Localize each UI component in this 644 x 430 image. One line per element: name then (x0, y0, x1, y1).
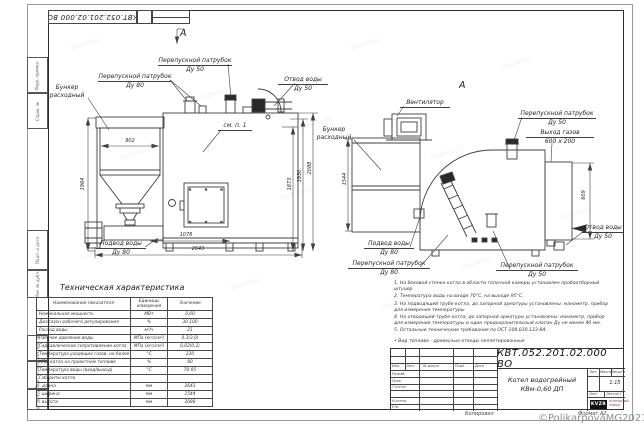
label-fan: Вентилятор (400, 99, 450, 108)
table-row: - длинамм2643 (37, 383, 213, 391)
technical-notes: 1. На боковой стенке котла в области топ… (394, 281, 612, 346)
stamp-col-izm: Изм. (392, 364, 405, 368)
label-bypass-pipe-50-bottom: Перепускной патрубокДу 50 (496, 262, 578, 279)
dimension-1078: 1078 (168, 232, 204, 238)
label-bypass-pipe-80-side: Перепускной патрубокДу 80 (348, 260, 430, 277)
table-row: Номинальная мощностьМВт0,60 (37, 311, 213, 319)
table-row: Диапазон рабочего регулирования%30-100 (37, 319, 213, 327)
stamp-row-nkontr: Н.контр. (392, 399, 419, 403)
title-block: Изм. Лист № докум. Подп. Дата Разраб. Пр… (390, 348, 624, 410)
kvzr-logo-caption: КОТЕЛЬНЫЙЗАВОД (609, 400, 625, 408)
page: { "sheet": { "doc_number": "КВТ.052.201.… (0, 0, 644, 430)
note-1: 1. На боковой стенке котла в области топ… (394, 281, 612, 293)
dimension-609: 609 (581, 180, 587, 210)
table-row: КПД котла на проектном топливе%80 (37, 359, 213, 367)
stamp-row-razrab: Разраб. (392, 372, 419, 376)
dimension-902: 902 (112, 138, 148, 144)
table-row: - ширинамм1544 (37, 391, 213, 399)
scale-value: 1:15 (605, 380, 625, 386)
stamp-lit: Лит. (588, 370, 599, 374)
view-title-letter: А (459, 80, 466, 91)
stamp-col-data: Дата (475, 364, 495, 368)
label-bunker: Бункеррасходный (44, 84, 90, 100)
stamp-row-prov: Пров. (392, 379, 419, 383)
label-bunker-side: Бункеррасходный (312, 126, 356, 142)
stamp-scale: Масштаб (611, 370, 625, 374)
label-bypass-pipe-50: Перепускной патрубокДу 50 (158, 57, 232, 74)
product-name: Котел водогрейный КВм-0,60 ДП (497, 369, 587, 411)
copyright-watermark: ©PolikarpovaMG2021 (538, 413, 644, 424)
spec-table-title: Техническая характеристика (60, 283, 184, 292)
dimension-2088: 2088 (307, 153, 313, 183)
table-row: Габариты котла (37, 375, 213, 383)
stamp-row-tkontr: Т.контр. (392, 385, 419, 389)
label-water-outlet: Отвод водыДу 50 (278, 76, 328, 93)
stamp-col-podp: Подп. (455, 364, 473, 368)
spec-header-unit: Единицы измерения (131, 298, 168, 311)
stamp-col-doc: № докум. (423, 364, 453, 368)
label-bypass-pipe-50-top: Перепускной патрубокДу 50 (518, 110, 596, 127)
dimension-1964: 1964 (80, 169, 86, 199)
doc-number: КВТ.052.201.02.000 ВО (497, 349, 625, 369)
note-5: 5. Остальные технические требования по О… (394, 328, 612, 334)
label-water-outlet-side: Отвод водыДу 50 (582, 224, 624, 241)
label-gas-outlet: Выход газов600 x 200 (526, 129, 594, 146)
label-bypass-pipe-80: Перепускной патрубокДу 80 (98, 73, 172, 90)
table-row: Температура уходящих газов, не более°С23… (37, 351, 213, 359)
stamp-row-utv: Утв. (392, 405, 419, 409)
spec-header-name: Наименование показателя (37, 298, 131, 311)
note-2: 2. Температура воды на входе 70°С, на вы… (394, 294, 612, 300)
note-4: 4. На отводящей трубе котла, до запорной… (394, 315, 612, 327)
table-row: Расход водым³/ч21 (37, 327, 213, 335)
dimension-1544: 1544 (342, 164, 348, 194)
label-water-inlet-side: Подвод водыДу 80 (364, 240, 414, 257)
dimension-2643: 2643 (180, 246, 216, 252)
dimension-1930: 1930 (297, 161, 303, 191)
spec-table: Наименование показателя Единицы измерени… (36, 297, 213, 407)
stamp-col-list: Лист (406, 364, 419, 368)
fuel-type-note: • Вид топлива - древесные отходы пеллети… (394, 339, 612, 345)
stamp-mass: Масса (600, 370, 611, 374)
kvzr-logo: KVZR (590, 400, 607, 409)
table-row: Температура воды (вход/выход)°С70-95 (37, 367, 213, 375)
table-row: Рабочее давление водыМПа (кгс/см²)0,3(3,… (37, 335, 213, 343)
spec-header-row: Наименование показателя Единицы измерени… (37, 298, 213, 311)
label-see-note-1: см. п. 1 (218, 122, 252, 131)
copied-label: Копировал (465, 411, 494, 417)
stamp-sheet: Лист (589, 392, 603, 396)
dimension-1873: 1873 (287, 169, 293, 199)
label-water-inlet: Подвод водыДу 80 (96, 240, 146, 257)
spec-header-value: Значение (168, 298, 213, 311)
note-3: 3. На подводящей трубе котла, до запорно… (394, 302, 612, 314)
stamp-sheets: Листов 1 (606, 392, 625, 396)
view-direction-letter: А (180, 28, 187, 39)
table-row: Гидравлическое сопротивление котлаМПа (к… (37, 343, 213, 351)
table-row: - высотамм2088 (37, 399, 213, 407)
